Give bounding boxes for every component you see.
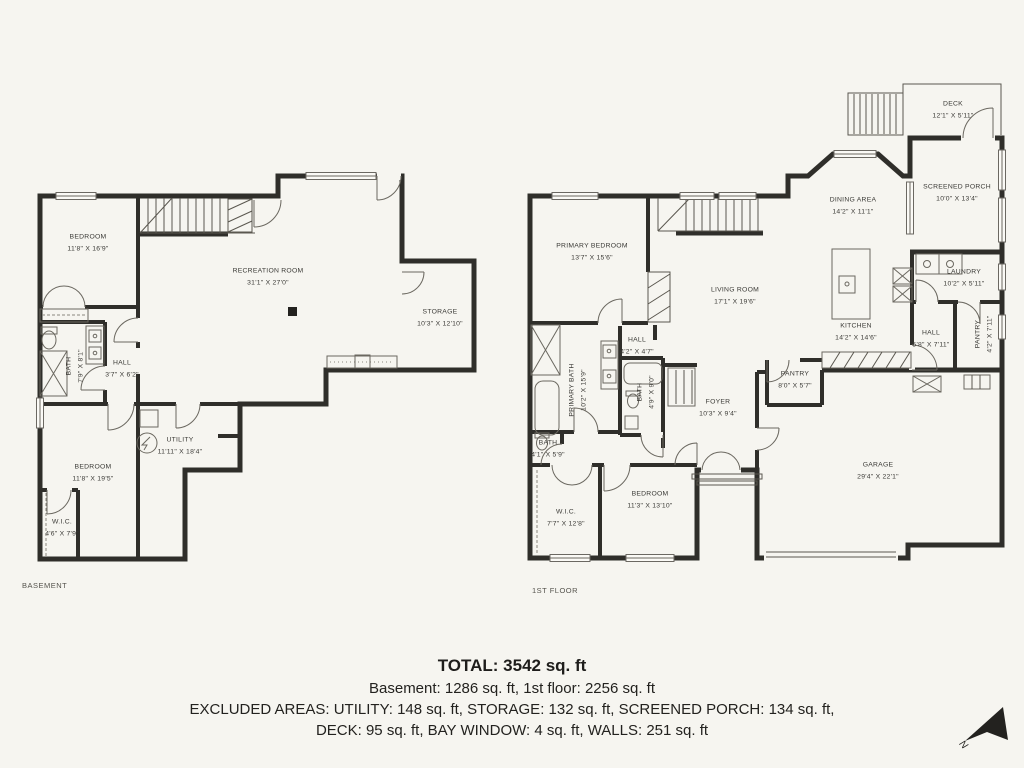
room-label-basement-bedroom1: BEDROOM 11'8" X 16'9"	[67, 231, 108, 254]
floorplan-svg: .w5{stroke:#2f2e2a;stroke-width:5;fill:n…	[0, 0, 1024, 768]
room-label-storage: STORAGE 10'3" X 12'10"	[417, 306, 463, 329]
room-label-pantry-tall: PANTRY 4'2" X 7'11"	[972, 315, 995, 352]
room-label-laundry: LAUNDRY 10'2" X 5'11"	[943, 266, 984, 289]
room-dims: 4'2" X 4'7"	[620, 346, 654, 358]
room-name: PANTRY	[778, 368, 812, 380]
room-name: HALL	[105, 357, 139, 369]
room-name: BEDROOM	[627, 488, 672, 500]
room-label-hall-small: HALL 4'2" X 4'7"	[620, 334, 654, 357]
room-name: PANTRY	[972, 315, 984, 352]
room-dims: 3'7" X 6'2"	[105, 369, 139, 381]
room-label-screened-porch: SCREENED PORCH 10'0" X 13'4"	[923, 181, 991, 204]
area-summary: TOTAL: 3542 sq. ft Basement: 1286 sq. ft…	[0, 656, 1024, 743]
room-dims: 10'3" X 12'10"	[417, 318, 463, 330]
room-dims: 11'8" X 19'5"	[72, 473, 113, 485]
basement-floor-label: BASEMENT	[22, 581, 67, 590]
room-dims: 5'8" X 7'11"	[912, 339, 949, 351]
room-dims: 10'2" X 5'11"	[943, 278, 984, 290]
room-label-basement-hall: HALL 3'7" X 6'2"	[105, 357, 139, 380]
room-name: DECK	[932, 98, 973, 110]
room-label-living-room: LIVING ROOM 17'1" X 19'6"	[711, 284, 759, 307]
room-label-small-bath: BATH 4'1" X 5'9"	[531, 437, 565, 460]
deck-structure	[848, 84, 1001, 135]
room-label-dining-area: DINING AREA 14'2" X 11'1"	[830, 194, 877, 217]
room-name: BATH	[63, 349, 75, 383]
room-dims: 10'3" X 9'4"	[699, 408, 737, 420]
room-label-first-floor-bedroom: BEDROOM 11'3" X 13'10"	[627, 488, 672, 511]
room-dims: 11'11" X 18'4"	[158, 446, 203, 458]
room-label-hall-bath: BATH 4'9" X 9'0"	[634, 375, 657, 409]
room-name: HALL	[620, 334, 654, 346]
room-dims: 7'7" X 12'8"	[547, 518, 585, 530]
room-dims: 7'9" X 8'1"	[75, 349, 87, 383]
excluded-areas-text-line1: EXCLUDED AREAS: UTILITY: 148 sq. ft, STO…	[0, 701, 1024, 718]
room-label-pantry-kitchen: PANTRY 8'0" X 5'7"	[778, 368, 812, 391]
room-name: STORAGE	[417, 306, 463, 318]
room-label-recreation-room: RECREATION ROOM 31'1" X 27'0"	[233, 265, 304, 288]
room-label-kitchen: KITCHEN 14'2" X 14'6"	[835, 320, 877, 343]
floor-areas-text: Basement: 1286 sq. ft, 1st floor: 2256 s…	[0, 680, 1024, 697]
room-name: GARAGE	[857, 459, 899, 471]
room-name: LIVING ROOM	[711, 284, 759, 296]
room-name: BEDROOM	[72, 461, 113, 473]
room-dims: 13'7" X 15'6"	[556, 252, 627, 264]
room-name: RECREATION ROOM	[233, 265, 304, 277]
room-label-first-floor-wic: W.I.C. 7'7" X 12'8"	[547, 506, 585, 529]
room-dims: 4'1" X 5'9"	[531, 449, 565, 461]
room-label-primary-bath: PRIMARY BATH 10'2" X 15'9"	[566, 363, 589, 416]
room-name: UTILITY	[158, 434, 203, 446]
first-floor-label: 1ST FLOOR	[532, 586, 578, 595]
room-dims: 4'9" X 9'0"	[646, 375, 658, 409]
room-label-utility: UTILITY 11'11" X 18'4"	[158, 434, 203, 457]
room-name: DINING AREA	[830, 194, 877, 206]
room-dims: 31'1" X 27'0"	[233, 277, 304, 289]
room-name: W.I.C.	[547, 506, 585, 518]
room-label-basement-bedroom2: BEDROOM 11'8" X 19'5"	[72, 461, 113, 484]
basement-fixtures	[40, 286, 397, 556]
room-name: PRIMARY BEDROOM	[556, 240, 627, 252]
room-dims: 12'1" X 5'11"	[932, 110, 973, 122]
basement-stairs	[140, 198, 255, 233]
room-dims: 8'0" X 5'7"	[778, 380, 812, 392]
room-dims: 11'8" X 16'9"	[67, 243, 108, 255]
room-dims: 10'0" X 13'4"	[923, 193, 991, 205]
room-name: BEDROOM	[67, 231, 108, 243]
room-dims: 29'4" X 22'1"	[857, 471, 899, 483]
room-dims: 11'3" X 13'10"	[627, 500, 672, 512]
room-dims: 4'6" X 7'9"	[45, 528, 79, 540]
floorplan-page: { "basement": { "floor_label": "BASEMENT…	[0, 0, 1024, 768]
room-name: LAUNDRY	[943, 266, 984, 278]
room-name: PRIMARY BATH	[566, 363, 578, 416]
room-name: FOYER	[699, 396, 737, 408]
excluded-areas-text-line2: DECK: 95 sq. ft, BAY WINDOW: 4 sq. ft, W…	[0, 722, 1024, 739]
room-dims: 10'2" X 15'9"	[578, 363, 590, 416]
room-name: HALL	[912, 327, 949, 339]
room-label-garage: GARAGE 29'4" X 22'1"	[857, 459, 899, 482]
room-dims: 17'1" X 19'6"	[711, 296, 759, 308]
room-label-basement-bath: BATH 7'9" X 8'1"	[63, 349, 86, 383]
room-label-deck: DECK 12'1" X 5'11"	[932, 98, 973, 121]
room-dims: 4'2" X 7'11"	[984, 315, 996, 352]
room-name: BATH	[634, 375, 646, 409]
total-area-text: TOTAL: 3542 sq. ft	[0, 656, 1024, 676]
room-label-primary-bedroom: PRIMARY BEDROOM 13'7" X 15'6"	[556, 240, 627, 263]
room-name: KITCHEN	[835, 320, 877, 332]
room-label-hall-mud: HALL 5'8" X 7'11"	[912, 327, 949, 350]
room-dims: 14'2" X 11'1"	[830, 206, 877, 218]
room-label-basement-wic: W.I.C. 4'6" X 7'9"	[45, 516, 79, 539]
room-name: SCREENED PORCH	[923, 181, 991, 193]
room-dims: 14'2" X 14'6"	[835, 332, 877, 344]
basement-door-gaps	[43, 172, 406, 493]
room-name: BATH	[531, 437, 565, 449]
room-name: W.I.C.	[45, 516, 79, 528]
room-label-foyer: FOYER 10'3" X 9'4"	[699, 396, 737, 419]
